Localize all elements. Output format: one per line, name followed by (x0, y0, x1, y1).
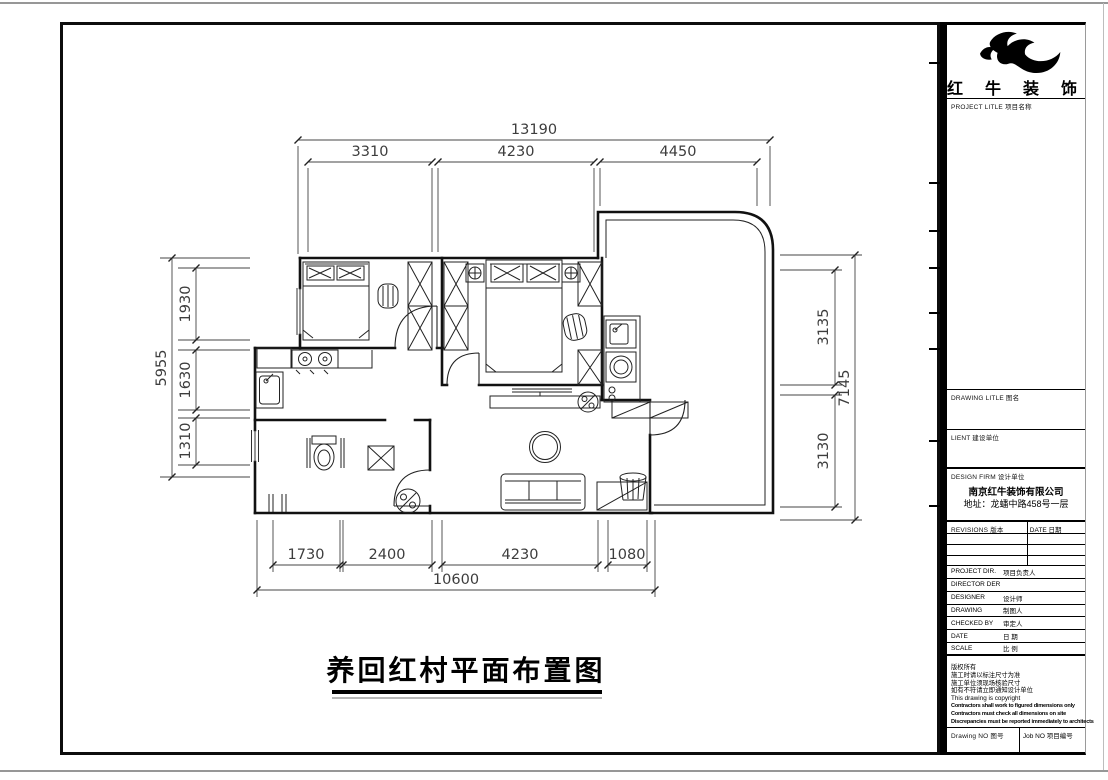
bed-2 (486, 260, 562, 372)
drawing-no-label: Drawing NO 图号 (947, 728, 1004, 740)
kitchen-counter (257, 348, 372, 374)
notes-section: 版权所有 施工时请以标注尺寸为准 施工单位须现场核验尺寸 如有不符请立即通知设计… (947, 662, 1085, 728)
signoff-en: CHECKED BY (951, 620, 1003, 627)
revisions-row-line (947, 555, 1085, 556)
dim-bottom-seg: 1080 (609, 547, 646, 563)
signoff-row: CHECKED BY 审定人 (947, 617, 1085, 630)
note-line: 版权所有 (951, 664, 1085, 672)
dim-bottom-seg: 2400 (369, 547, 406, 563)
drawing-sheet: 13190 3310 4230 4450 1730 2400 4230 1080… (0, 0, 1108, 780)
signoff-en: DATE (951, 633, 1003, 640)
design-firm-section: DESIGN FIRM 设计单位 南京红牛装饰有限公司 地址：龙蟠中路458号一… (947, 469, 1085, 522)
signoff-section: PROJECT DIR. 项目负责人 DIRECTOR DER DESIGNER… (947, 565, 1085, 662)
walls (255, 212, 773, 513)
signoff-row: DATE 日 期 (947, 630, 1085, 643)
chair-icon (378, 284, 398, 308)
utility-appliances (604, 316, 640, 402)
dim-left-overall: 5955 (154, 350, 170, 387)
drain-fan-icons (396, 392, 598, 513)
note-line: 施工时请以标注尺寸为准 (951, 672, 1085, 680)
dim-top-overall: 13190 (511, 122, 557, 138)
design-firm-label: DESIGN FIRM 设计单位 (947, 469, 1085, 481)
dim-left-seg: 1310 (178, 423, 194, 460)
dim-top-seg: 4230 (498, 144, 535, 160)
dim-left-seg: 1930 (178, 286, 194, 323)
note-line: This drawing is copyright (951, 695, 1085, 703)
signoff-row: DRAWING 制图人 (947, 605, 1085, 618)
dimension-ticks (169, 137, 859, 594)
signoff-zh: 制图人 (1003, 605, 1023, 615)
sofa (501, 474, 585, 510)
dim-right-overall: 7145 (837, 370, 853, 407)
title-block: 红 牛 装 饰 PROJECT LITLE 项目名称 DRAWING LITLE… (940, 22, 1086, 755)
signoff-zh: 日 期 (1003, 631, 1018, 641)
firm-name: 南京红牛装饰有限公司 (947, 484, 1085, 498)
dim-bottom-seg: 4230 (502, 547, 539, 563)
signoff-en: DRAWING (951, 607, 1003, 614)
logo-section: 红 牛 装 饰 (947, 25, 1085, 99)
dim-bottom-seg: 1730 (288, 547, 325, 563)
washing-machine-icon (368, 446, 394, 470)
client-label: LIENT 建设单位 (947, 430, 1085, 442)
signoff-row: DIRECTOR DER (947, 579, 1085, 592)
note-line: 如有不符请立即通知设计单位 (951, 687, 1085, 695)
tv-bench (490, 389, 600, 408)
signoff-en: DIRECTOR DER (951, 581, 1003, 588)
bed-1 (303, 262, 369, 340)
shower-screen (269, 438, 344, 512)
job-no-label: Job NO 项目编号 (1023, 728, 1073, 740)
chair-icon (562, 312, 589, 342)
drawing-title-label: DRAWING LITLE 图名 (947, 390, 1085, 402)
round-table (530, 432, 561, 463)
big-room-inner-wall (606, 220, 765, 505)
dim-top-seg: 3310 (352, 144, 389, 160)
shoe-cabinet (612, 402, 688, 418)
drawing-title-section: DRAWING LITLE 图名 (947, 390, 1085, 430)
plan-title: 养回红村平面布置图 (326, 654, 605, 686)
stool (620, 473, 646, 500)
revisions-row-line (947, 533, 1085, 534)
dim-bottom-overall: 10600 (433, 572, 479, 588)
revisions-section: REVISIONS 版本 DATE 日期 (947, 522, 1085, 565)
firm-address: 地址：龙蟠中路458号一层 (947, 499, 1085, 510)
dim-top-seg: 4450 (660, 144, 697, 160)
signoff-en: SCALE (951, 645, 1003, 652)
signoff-zh: 项目负责人 (1003, 567, 1036, 577)
rednow-bull-logo-icon (975, 27, 1067, 77)
logo-text: 红 牛 装 饰 (947, 75, 1085, 99)
note-line-bold: Contractors shall work to figured dimens… (951, 703, 1085, 711)
signoff-en: PROJECT DIR. (951, 568, 1003, 575)
dim-right-seg: 3135 (816, 309, 832, 346)
numbers-divider (1019, 728, 1020, 752)
signoff-zh: 比 例 (1003, 643, 1018, 653)
signoff-row: DESIGNER 设计师 (947, 592, 1085, 605)
note-line-bold: Discrepancies must be reported immediate… (951, 719, 1085, 727)
signoff-en: DESIGNER (951, 594, 1003, 601)
project-title-section: PROJECT LITLE 项目名称 (947, 99, 1085, 390)
kitchen-sink (256, 372, 283, 408)
signoff-zh: 审定人 (1003, 618, 1023, 628)
revisions-row-line (947, 544, 1085, 545)
plan-title-group: 养回红村平面布置图 (326, 654, 605, 698)
project-title-label: PROJECT LITLE 项目名称 (947, 99, 1085, 111)
note-line-bold: Contractors must check all dimensions on… (951, 711, 1085, 719)
dim-left-seg: 1630 (178, 362, 194, 399)
signoff-row: PROJECT DIR. 项目负责人 (947, 566, 1085, 579)
dim-right-seg: 3130 (816, 433, 832, 470)
furniture (256, 260, 688, 513)
signoff-zh: 设计师 (1003, 593, 1023, 603)
signoff-row: SCALE 比 例 (947, 643, 1085, 656)
toilet-icon (312, 436, 336, 470)
windows (252, 264, 561, 462)
numbers-section: Drawing NO 图号 Job NO 项目编号 (947, 728, 1085, 752)
client-section: LIENT 建设单位 (947, 430, 1085, 469)
dimension-labels: 13190 3310 4230 4450 1730 2400 4230 1080… (154, 122, 853, 588)
